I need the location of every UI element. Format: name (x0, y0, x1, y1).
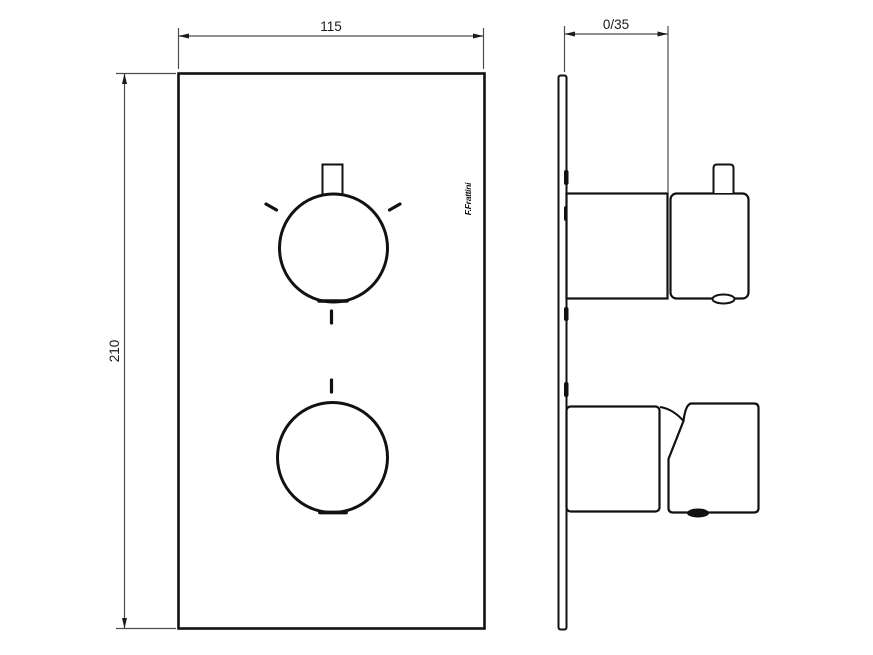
upper-valve-body (567, 194, 668, 299)
plate-mark-1 (564, 170, 569, 185)
front-plate-outline (179, 74, 485, 629)
side-plate-profile (559, 76, 567, 630)
dim-label-depth: 0/35 (603, 17, 629, 32)
plate-mark-3 (564, 307, 569, 321)
brand-logo-text: F.Frattini (463, 182, 473, 215)
dim-label-width: 115 (320, 19, 342, 34)
arrowhead-left (179, 34, 190, 39)
upper-knob-handle-side (671, 194, 749, 299)
top-knob-stem (323, 165, 343, 195)
technical-drawing-canvas: F.Frattini 115 (0, 0, 873, 655)
arrowhead-right (658, 32, 669, 37)
dimension-depth-035: 0/35 (565, 17, 669, 193)
upper-handle-oval-detail (713, 295, 735, 304)
lower-valve-body (567, 407, 660, 512)
arrowhead-top (122, 74, 127, 85)
drawing-svg: F.Frattini 115 (0, 0, 873, 655)
front-view: F.Frattini (179, 74, 485, 629)
dimension-height-210: 210 (107, 74, 176, 629)
lower-handle-oval-detail (688, 509, 709, 517)
upper-stem-side (714, 165, 734, 194)
plate-mark-4 (564, 382, 569, 397)
arrowhead-right (473, 34, 484, 39)
dimension-width-115: 115 (179, 19, 484, 69)
top-knob-circle (280, 194, 388, 302)
arrowhead-left (565, 32, 576, 37)
lower-handle-neck-curve (660, 407, 684, 421)
bottom-knob-circle (278, 403, 388, 513)
dim-label-height: 210 (107, 340, 122, 363)
side-view (559, 76, 759, 630)
arrowhead-bottom (122, 618, 127, 629)
